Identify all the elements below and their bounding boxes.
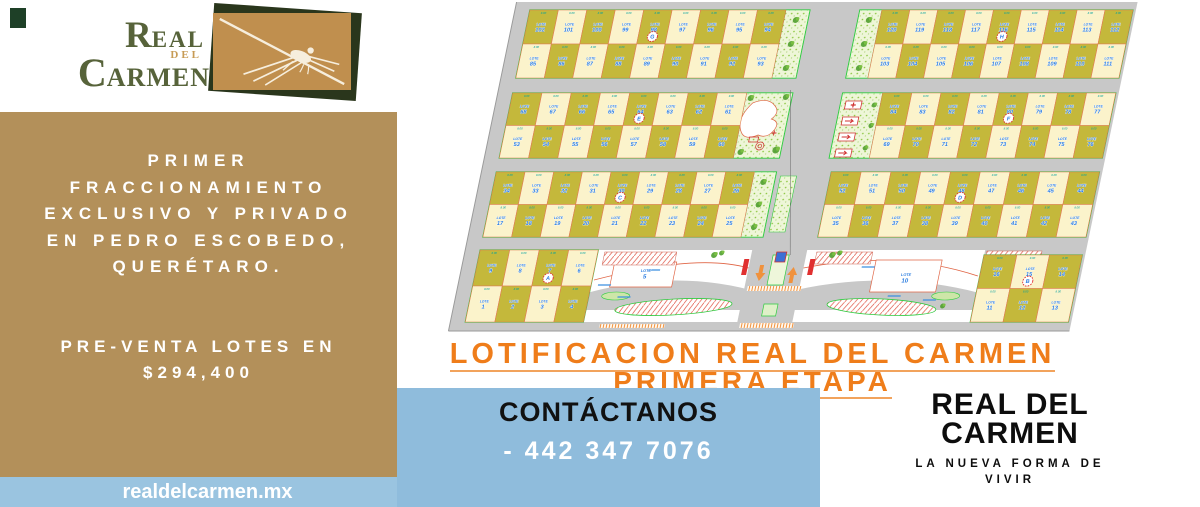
plan-title-line1: LOTIFICACION REAL DEL CARMEN [430,340,1075,368]
presale-line: PRE-VENTA LOTES EN [0,334,397,360]
svg-text:LOTE: LOTE [700,57,711,61]
svg-text:LOTE: LOTE [589,184,600,188]
svg-text:71: 71 [941,142,948,148]
svg-text:LOTE: LOTE [697,216,708,220]
svg-text:LOTE: LOTE [671,57,682,61]
svg-text:LOTE: LOTE [536,23,547,27]
svg-text:56: 56 [601,142,608,148]
svg-text:118: 118 [942,28,952,34]
svg-text:LOTE: LOTE [582,216,593,220]
svg-text:99: 99 [622,28,629,34]
svg-text:LOTE: LOTE [881,57,892,61]
lot-block: 8.00LOTE528.00LOTE518.00LOTE508.00LOTE49… [818,172,1099,237]
svg-text:LOTE: LOTE [513,137,524,141]
svg-text:27: 27 [704,189,711,195]
svg-text:LOTE: LOTE [724,105,735,109]
svg-text:83: 83 [919,110,926,116]
svg-text:39: 39 [951,221,958,227]
svg-text:LOTE: LOTE [726,216,737,220]
svg-text:LOTE: LOTE [668,216,679,220]
svg-text:49: 49 [928,189,935,195]
svg-text:112: 112 [1110,28,1120,34]
svg-text:31: 31 [589,189,596,195]
svg-text:102: 102 [535,28,546,34]
gate-booth [775,252,787,262]
promo-panel: PRIMER FRACCIONAMIENTO EXCLUSIVO Y PRIVA… [0,112,397,477]
median-island [762,304,778,316]
svg-text:LOTE: LOTE [958,184,969,188]
svg-text:119: 119 [914,28,924,34]
svg-text:35: 35 [832,221,839,227]
svg-text:LOTE: LOTE [1035,105,1046,109]
svg-text:LOTE: LOTE [993,267,1004,271]
svg-text:21: 21 [611,221,618,227]
svg-text:66: 66 [578,110,585,116]
svg-text:LOTE: LOTE [1077,184,1088,188]
logo: REAL DEL CARMEN [55,4,370,108]
svg-text:LOTE: LOTE [650,23,661,27]
svg-text:LOTE: LOTE [646,184,657,188]
logo-word-carmen: CARMEN [78,49,210,96]
svg-text:11: 11 [986,306,993,312]
crosswalk [599,324,665,328]
svg-text:LOTE: LOTE [1027,23,1038,27]
corner-accent-square [10,8,26,28]
headline-line: PRIMER [0,148,397,175]
svg-text:LOTE: LOTE [549,105,560,109]
svg-text:LOTE: LOTE [1076,57,1087,61]
svg-text:LOTE: LOTE [586,57,597,61]
svg-text:LOTE: LOTE [688,137,699,141]
presale-offer: PRE-VENTA LOTES EN $294,400 [0,334,397,386]
svg-text:LOTE: LOTE [832,216,843,220]
svg-text:51: 51 [868,189,875,195]
svg-text:LOTE: LOTE [764,23,775,27]
site-plan-map: 8.00LOTE1028.00LOTE1018.00LOTE1008.00LOT… [440,0,1145,333]
svg-text:63: 63 [666,110,673,116]
svg-text:105: 105 [935,62,946,68]
svg-text:LOTE: LOTE [666,105,677,109]
svg-text:90: 90 [671,62,678,68]
svg-text:LOTE: LOTE [838,184,849,188]
svg-text:LOTE: LOTE [520,105,531,109]
svg-text:LOTE: LOTE [757,57,768,61]
svg-text:LOTE: LOTE [1017,184,1028,188]
svg-text:29: 29 [646,189,653,195]
svg-text:LOTE: LOTE [575,264,586,268]
svg-text:38: 38 [921,221,928,227]
svg-text:46: 46 [1017,189,1024,195]
svg-text:LOTE: LOTE [909,57,920,61]
svg-text:109: 109 [1047,62,1058,68]
svg-text:LOTE: LOTE [532,184,543,188]
svg-text:LOTE: LOTE [618,184,629,188]
svg-text:LOTE: LOTE [525,216,536,220]
logo-gold-panel [213,13,351,90]
svg-text:50: 50 [898,189,905,195]
green-island [931,292,961,300]
svg-text:26: 26 [732,189,739,195]
svg-text:69: 69 [883,142,890,148]
lot-44: 8.00LOTE44 [1063,172,1100,205]
svg-text:LOTE: LOTE [1058,137,1069,141]
brand-name-line1: REAL DEL [840,390,1180,419]
svg-text:115: 115 [1026,28,1036,34]
svg-text:LOTE: LOTE [695,105,706,109]
svg-text:60: 60 [718,142,725,148]
headline-line: EXCLUSIVO Y PRIVADO [0,201,397,228]
svg-text:LOTE: LOTE [607,105,618,109]
svg-text:LOTE: LOTE [891,216,902,220]
svg-text:LOTE: LOTE [735,23,746,27]
svg-text:81: 81 [977,110,984,116]
svg-text:LOTE: LOTE [1020,57,1031,61]
headline-line: QUERÉTARO. [0,254,397,281]
svg-text:LOTE: LOTE [707,23,718,27]
svg-text:LOTE: LOTE [992,57,1003,61]
svg-text:LOTE: LOTE [732,184,743,188]
svg-text:47: 47 [987,189,994,195]
svg-text:LOTE: LOTE [970,137,981,141]
svg-text:LOTE: LOTE [987,184,998,188]
svg-text:LOTE: LOTE [965,57,976,61]
svg-text:85: 85 [529,62,536,68]
lot-block: 8.00LOTE688.00LOTE678.00LOTE668.00LOTE65… [499,93,792,158]
brand-tagline-line1: LA NUEVA FORMA DE [840,456,1180,472]
svg-text:87: 87 [586,62,593,68]
svg-text:LOTE: LOTE [601,137,612,141]
svg-text:LOTE: LOTE [999,23,1010,27]
parking-row [602,252,677,265]
svg-text:LOTE: LOTE [560,184,571,188]
svg-text:LOTE: LOTE [1055,23,1066,27]
svg-text:LOTE: LOTE [941,137,952,141]
svg-text:LOTE: LOTE [593,23,604,27]
svg-text:LOTE: LOTE [986,301,997,305]
svg-text:LOTE: LOTE [529,57,540,61]
svg-text:41: 41 [1010,221,1017,227]
svg-text:LOTE: LOTE [516,264,527,268]
svg-text:LOTE: LOTE [898,184,909,188]
svg-text:LOTE: LOTE [675,184,686,188]
svg-text:LOTE: LOTE [622,23,633,27]
svg-text:67: 67 [549,110,556,116]
svg-text:45: 45 [1047,189,1054,195]
svg-text:LOTE: LOTE [901,273,912,277]
flyer-canvas: { "logo": { "line1_initial": "R", "line1… [0,0,1200,507]
svg-text:79: 79 [1035,110,1042,116]
svg-text:LOTE: LOTE [571,137,582,141]
svg-text:LOTE: LOTE [1048,57,1059,61]
svg-text:LOTE: LOTE [977,105,988,109]
svg-text:LOTE: LOTE [919,105,930,109]
svg-text:62: 62 [695,110,702,116]
svg-text:LOTE: LOTE [1040,216,1051,220]
svg-text:103: 103 [879,62,890,68]
svg-text:LOTE: LOTE [981,216,992,220]
website-url: realdelcarmen.mx [0,477,415,507]
svg-text:59: 59 [688,142,695,148]
svg-text:LOTE: LOTE [487,264,498,268]
svg-text:70: 70 [912,142,919,148]
svg-text:113: 113 [1082,28,1092,34]
svg-text:91: 91 [700,62,707,68]
svg-text:23: 23 [668,221,675,227]
lot-block: 8.00LOTE848.00LOTE838.00LOTE828.00LOTE81… [829,93,1115,158]
svg-text:LOTE: LOTE [659,137,670,141]
svg-text:LOTE: LOTE [1083,23,1094,27]
svg-text:LOTE: LOTE [1104,57,1115,61]
svg-text:LOTE: LOTE [538,300,549,304]
svg-text:LOTE: LOTE [999,137,1010,141]
svg-text:LOTE: LOTE [496,216,507,220]
svg-text:73: 73 [999,142,1006,148]
svg-text:LOTE: LOTE [1006,105,1017,109]
svg-text:89: 89 [643,62,650,68]
crosswalk [739,323,794,328]
svg-text:LOTE: LOTE [568,300,579,304]
svg-text:LOTE: LOTE [1051,301,1062,305]
svg-text:LOTE: LOTE [1058,267,1069,271]
svg-text:LOTE: LOTE [1047,184,1058,188]
svg-text:28: 28 [675,189,682,195]
brand-tagline-line2: VIVIR [840,472,1180,488]
svg-text:32: 32 [560,189,567,195]
svg-text:110: 110 [1075,62,1085,68]
svg-text:LOTE: LOTE [888,23,899,27]
green-island [601,292,631,300]
brand-footer: REAL DEL CARMEN LA NUEVA FORMA DE VIVIR [840,390,1180,488]
svg-text:111: 111 [1103,62,1113,68]
svg-text:106: 106 [963,62,974,68]
lot-13: 8.00LOTE13 [1036,289,1076,323]
svg-text:52: 52 [838,189,845,195]
svg-text:LOTE: LOTE [916,23,927,27]
svg-text:LOTE: LOTE [503,184,514,188]
svg-text:LOTE: LOTE [643,57,654,61]
svg-text:76: 76 [1087,142,1094,148]
svg-text:LOTE: LOTE [718,137,729,141]
headline-line: EN PEDRO ESCOBEDO, [0,228,397,255]
plan-title: LOTIFICACION REAL DEL CARMEN PRIMERA ETA… [430,340,1075,395]
svg-text:92: 92 [728,62,735,68]
hummingbird-icon [213,13,351,90]
svg-text:LOTE: LOTE [1093,105,1104,109]
svg-text:LOTE: LOTE [615,57,626,61]
svg-text:33: 33 [532,189,539,195]
svg-text:36: 36 [862,221,869,227]
svg-text:19: 19 [554,221,561,227]
svg-text:LOTE: LOTE [928,184,939,188]
svg-text:93: 93 [757,62,764,68]
promo-headline: PRIMER FRACCIONAMIENTO EXCLUSIVO Y PRIVA… [0,112,397,281]
svg-text:61: 61 [724,110,731,116]
svg-text:108: 108 [1019,62,1030,68]
svg-text:LOTE: LOTE [1064,105,1075,109]
svg-text:LOTE: LOTE [640,216,651,220]
svg-text:25: 25 [726,221,733,227]
svg-text:77: 77 [1093,110,1100,116]
svg-text:75: 75 [1058,142,1065,148]
svg-text:78: 78 [1064,110,1071,116]
svg-text:LOTE: LOTE [558,57,569,61]
svg-text:68: 68 [520,110,527,116]
svg-text:117: 117 [970,28,980,34]
contact-box: CONTÁCTANOS - 442 347 7076 [397,388,820,507]
svg-text:20: 20 [582,221,589,227]
parking-row [814,252,872,264]
svg-text:100: 100 [592,28,603,34]
svg-text:57: 57 [630,142,637,148]
svg-text:97: 97 [678,28,685,34]
svg-text:13: 13 [1051,306,1058,312]
svg-text:86: 86 [558,62,565,68]
svg-text:LOTE: LOTE [479,300,490,304]
lot-43: 8.00LOTE43 [1056,205,1093,238]
svg-text:LOTE: LOTE [509,300,520,304]
svg-text:LOTE: LOTE [678,23,689,27]
svg-text:43: 43 [1070,221,1077,227]
lot-block: 8.00LOTE1028.00LOTE1018.00LOTE1008.00LOT… [516,10,810,78]
svg-text:55: 55 [571,142,578,148]
svg-text:LOTE: LOTE [972,23,983,27]
svg-text:LOTE: LOTE [921,216,932,220]
logo-carmen-initial: C [78,50,107,95]
svg-text:LOTE: LOTE [546,264,557,268]
svg-text:LOTE: LOTE [554,216,565,220]
svg-text:18: 18 [525,221,532,227]
svg-text:58: 58 [659,142,666,148]
svg-text:LOTE: LOTE [912,137,923,141]
svg-text:LOTE: LOTE [948,105,959,109]
presale-price: $294,400 [0,360,397,386]
svg-text:LOTE: LOTE [1111,23,1122,27]
svg-text:LOTE: LOTE [565,23,576,27]
logo-carmen-rest: ARMEN [107,63,210,92]
contact-phone: - 442 347 7076 [397,437,820,466]
svg-text:LOTE: LOTE [1010,216,1021,220]
svg-text:LOTE: LOTE [1070,216,1081,220]
lot-block: 8.00LOTE168.00LOTE158.00LOTE148.00LOTE11… [970,255,1082,322]
svg-text:16: 16 [993,272,1000,278]
svg-text:88: 88 [614,62,621,68]
svg-text:96: 96 [707,28,714,34]
svg-text:LOTE: LOTE [944,23,955,27]
svg-text:LOTE: LOTE [868,184,879,188]
svg-text:40: 40 [981,221,988,227]
svg-text:17: 17 [496,221,503,227]
svg-text:LOTE: LOTE [578,105,589,109]
svg-text:LOTE: LOTE [1025,267,1036,271]
svg-text:22: 22 [640,221,647,227]
svg-text:LOTE: LOTE [704,184,715,188]
svg-text:95: 95 [735,28,742,34]
svg-text:72: 72 [970,142,977,148]
svg-text:LOTE: LOTE [1018,301,1029,305]
svg-text:107: 107 [991,62,1002,68]
brand-name-line2: CARMEN [840,419,1180,448]
svg-text:LOTE: LOTE [542,137,553,141]
lot-block: 8.00LOTE98.00LOTE88.00LOTE78.00LOTE68.00… [465,250,598,322]
svg-text:82: 82 [948,110,955,116]
svg-text:LOTE: LOTE [728,57,739,61]
svg-text:12: 12 [1018,306,1025,312]
headline-line: FRACCIONAMIENTO [0,175,397,202]
svg-text:LOTE: LOTE [883,137,894,141]
contact-heading: CONTÁCTANOS [397,388,820,428]
svg-text:37: 37 [891,221,898,227]
crosswalk [747,286,802,291]
svg-text:LOTE: LOTE [640,269,651,273]
svg-text:101: 101 [563,28,574,34]
svg-text:LOTE: LOTE [951,216,962,220]
lot-block: 8.00LOTE348.00LOTE338.00LOTE328.00LOTE31… [483,172,776,237]
svg-text:42: 42 [1040,221,1047,227]
svg-text:LOTE: LOTE [1087,137,1098,141]
svg-text:LOTE: LOTE [890,105,901,109]
svg-text:LOTE: LOTE [630,137,641,141]
svg-text:LOTE: LOTE [1028,137,1039,141]
svg-text:LOTE: LOTE [937,57,948,61]
svg-text:LOTE: LOTE [611,216,622,220]
lot-14: 8.00LOTE14 [1043,255,1083,289]
svg-text:65: 65 [607,110,614,116]
svg-text:53: 53 [513,142,520,148]
svg-text:LOTE: LOTE [637,105,648,109]
svg-text:LOTE: LOTE [862,216,873,220]
svg-text:120: 120 [886,28,897,34]
lot-block: 8.00LOTE1208.00LOTE1198.00LOTE1188.00LOT… [846,10,1133,78]
